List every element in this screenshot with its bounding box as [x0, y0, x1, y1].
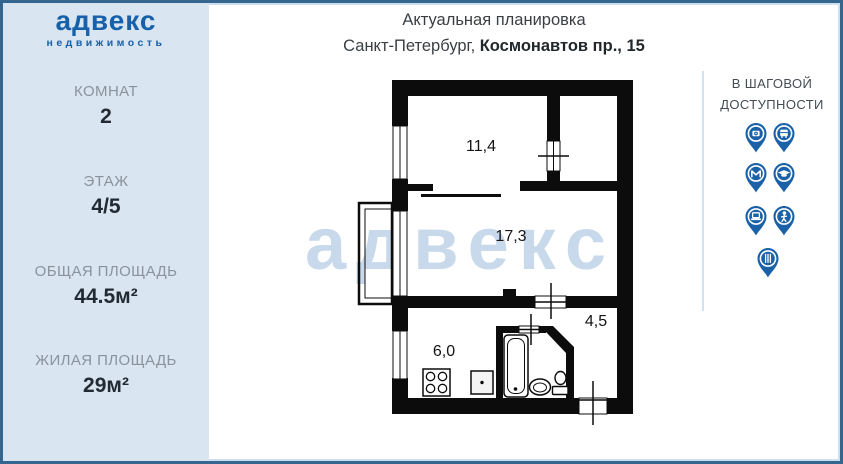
education-pin-icon	[771, 162, 797, 194]
page-title-line2: Санкт-Петербург, Космонавтов пр., 15	[210, 37, 778, 56]
restaurant-pin-icon	[755, 247, 781, 279]
stat-rooms-value: 2	[3, 105, 209, 129]
stat-floor: ЭТАЖ 4/5	[3, 173, 209, 219]
floorplan: 11,4 17,3 4,5 6,0	[343, 61, 703, 441]
stat-living-area-value: 29м²	[3, 374, 209, 398]
stove-icon	[423, 369, 450, 396]
bus-pin-icon	[771, 122, 797, 154]
brand-logo: адвекс недвижимость	[3, 7, 209, 49]
kitchen-sink-icon	[471, 371, 493, 394]
stat-floor-label: ЭТАЖ	[3, 173, 209, 190]
brand-name: адвекс	[3, 7, 209, 35]
stat-floor-value: 4/5	[3, 195, 209, 219]
room-area-label: 4,5	[585, 313, 607, 330]
stat-total-area: ОБЩАЯ ПЛОЩАДЬ 44.5м²	[3, 263, 209, 309]
page-title: Актуальная планировка Санкт-Петербург, К…	[210, 11, 778, 56]
balcony	[359, 203, 392, 304]
title-city: Санкт-Петербург,	[343, 37, 480, 55]
room-area-label: 17,3	[495, 228, 526, 245]
toilet-icon	[553, 372, 569, 395]
windows	[393, 126, 569, 379]
stat-living-area-label: ЖИЛАЯ ПЛОЩАДЬ	[3, 352, 209, 369]
page-frame: адвекс недвижимость КОМНАТ 2 ЭТАЖ 4/5 ОБ…	[0, 0, 843, 464]
laptop-pin-icon	[743, 205, 769, 237]
walking-title-line1: В ШАГОВОЙ	[703, 73, 841, 94]
sidebar: адвекс недвижимость КОМНАТ 2 ЭТАЖ 4/5 ОБ…	[3, 3, 209, 461]
room-area-label: 11,4	[466, 138, 496, 155]
bathtub-icon	[504, 335, 528, 397]
brand-tagline: недвижимость	[3, 37, 209, 49]
walking-title-line2: ДОСТУПНОСТИ	[703, 94, 841, 115]
camera-pin-icon	[743, 122, 769, 154]
stat-living-area: ЖИЛАЯ ПЛОЩАДЬ 29м²	[3, 352, 209, 398]
stat-total-area-label: ОБЩАЯ ПЛОЩАДЬ	[3, 263, 209, 280]
room-area-label: 6,0	[433, 343, 455, 360]
page-title-line1: Актуальная планировка	[210, 11, 778, 30]
title-address: Космонавтов пр., 15	[480, 37, 645, 55]
walking-distance-panel: В ШАГОВОЙ ДОСТУПНОСТИ	[703, 73, 841, 116]
washbasin-icon	[530, 379, 551, 395]
person-pin-icon	[771, 205, 797, 237]
stat-rooms-label: КОМНАТ	[3, 83, 209, 100]
metro-pin-icon	[743, 162, 769, 194]
stat-total-area-value: 44.5м²	[3, 285, 209, 309]
stat-rooms: КОМНАТ 2	[3, 83, 209, 129]
